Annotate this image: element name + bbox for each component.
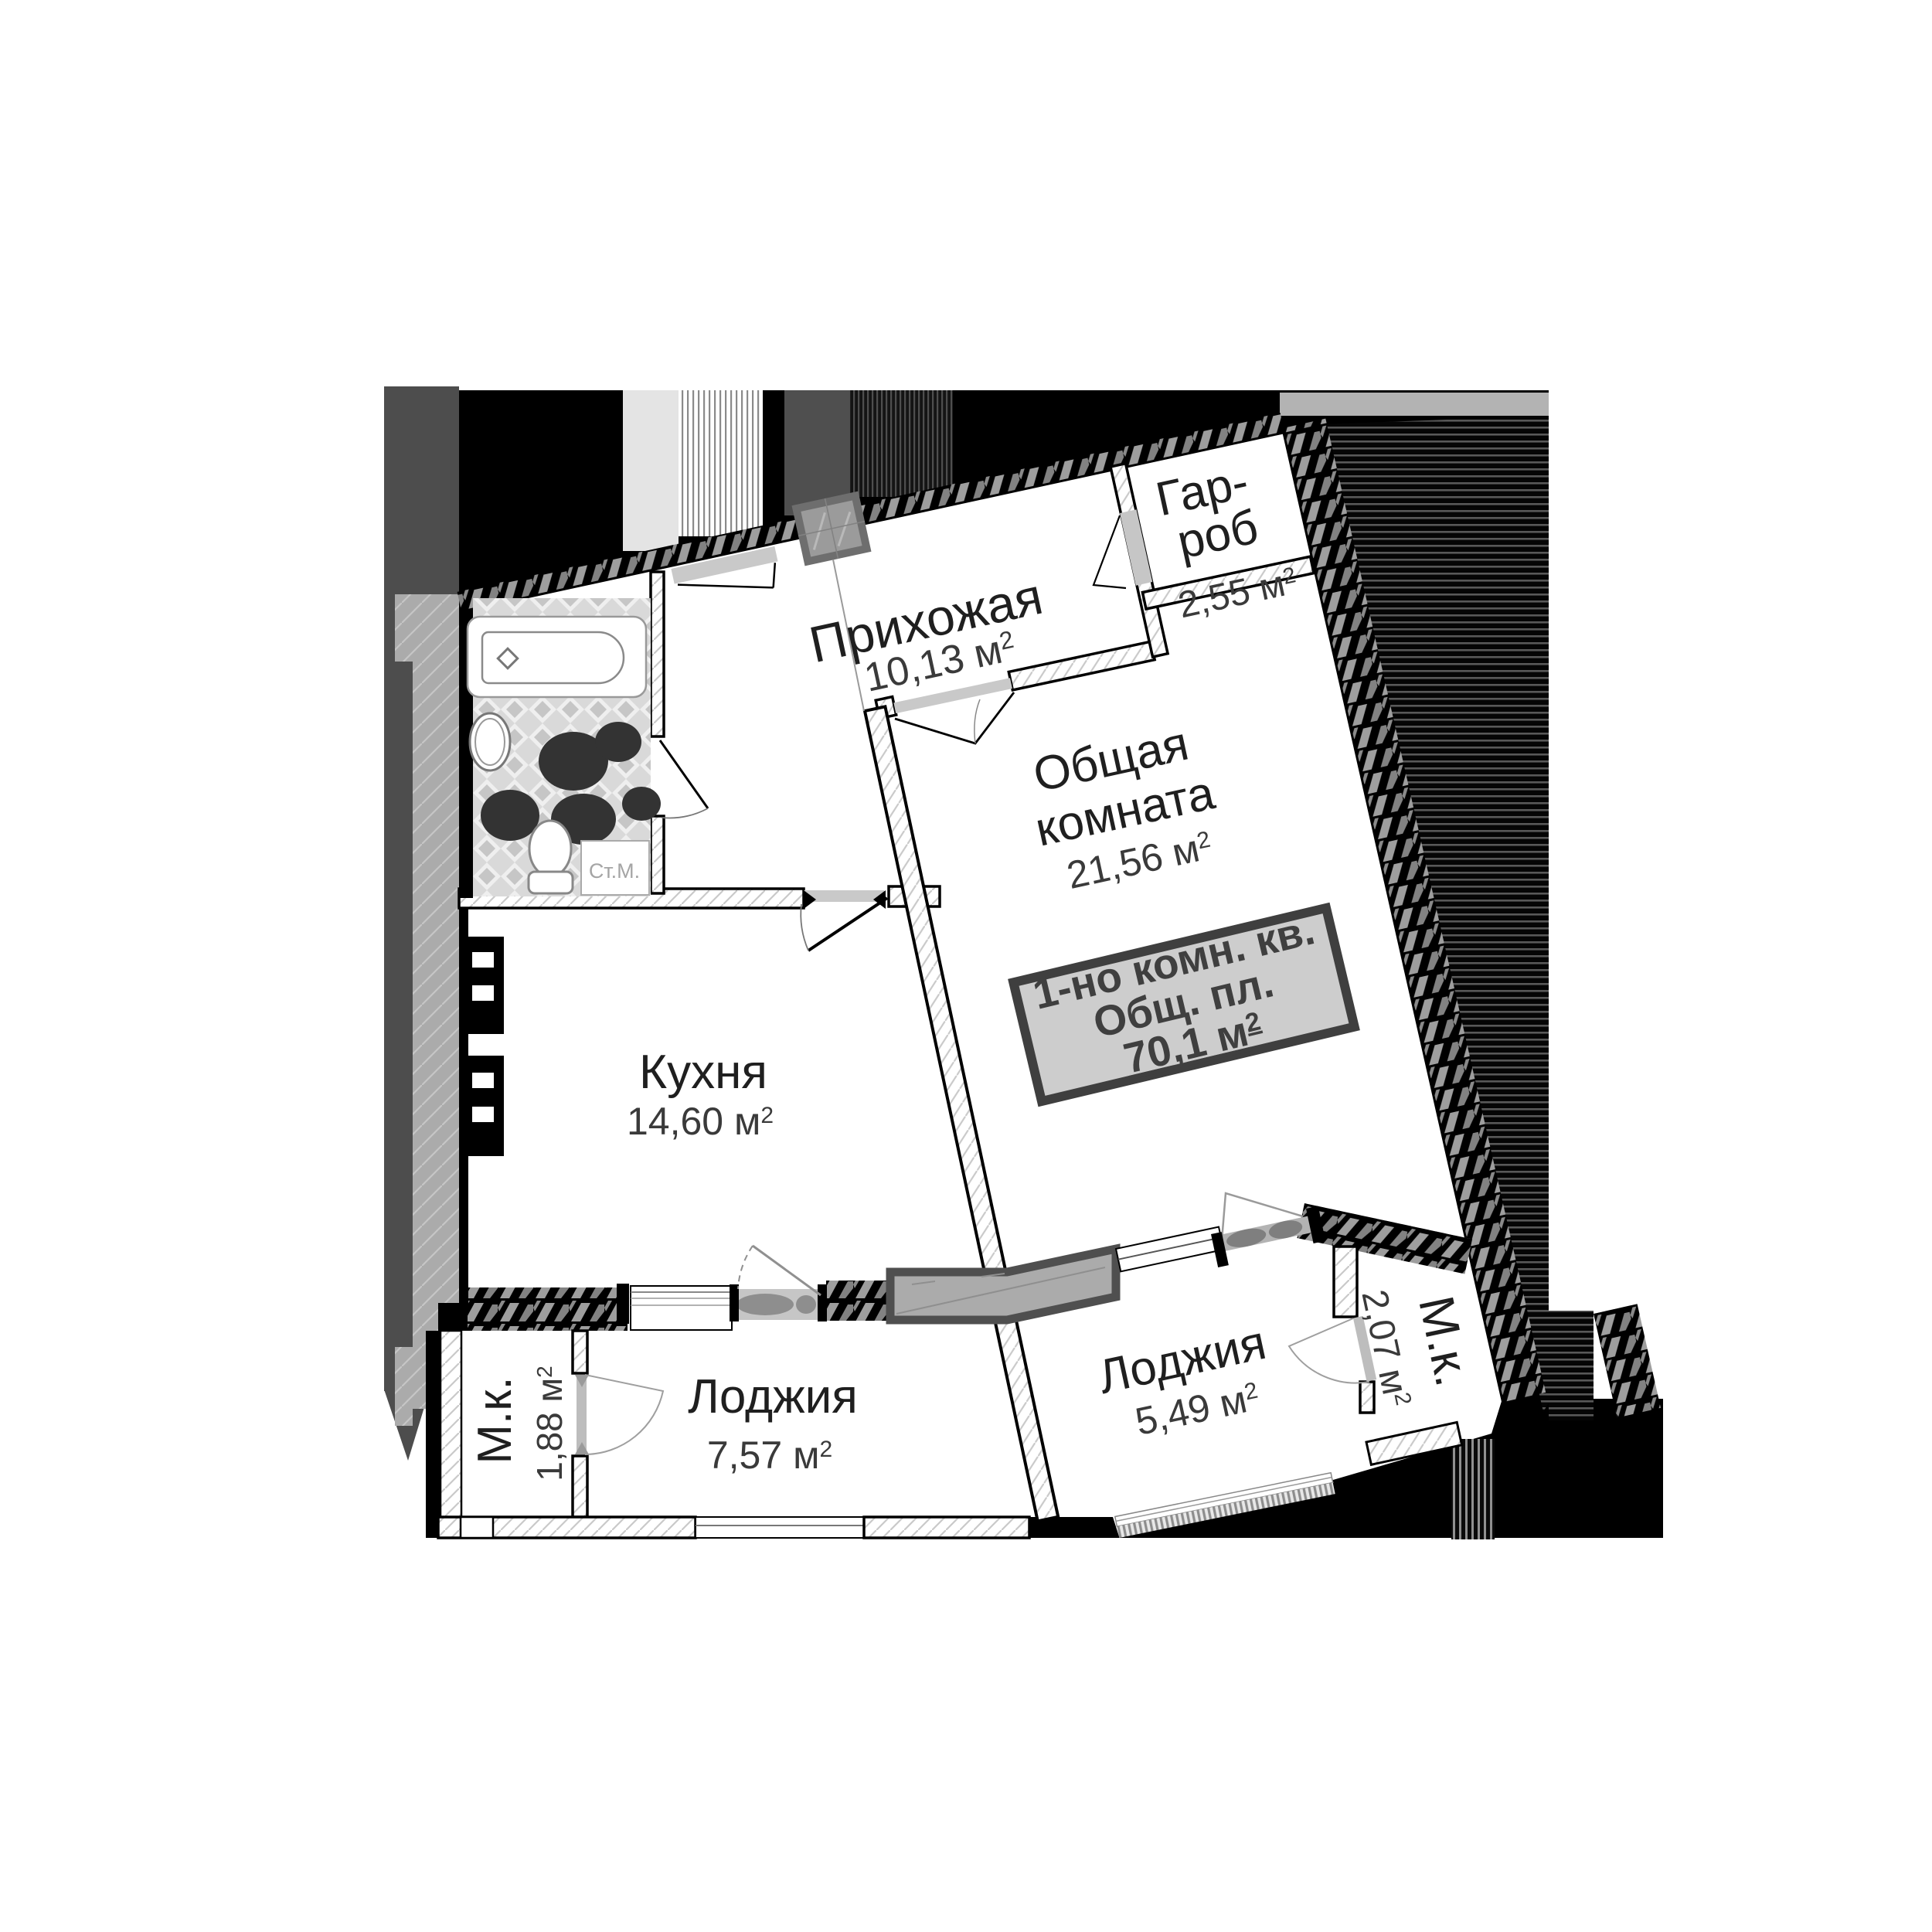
svg-text:7,57 м2: 7,57 м2 bbox=[707, 1434, 832, 1477]
svg-text:14,60 м2: 14,60 м2 bbox=[627, 1100, 774, 1143]
svg-text:1,88 м2: 1,88 м2 bbox=[529, 1366, 570, 1481]
svg-text:М.к.: М.к. bbox=[468, 1376, 522, 1464]
svg-text:Лоджия: Лоджия bbox=[688, 1370, 858, 1423]
svg-text:Ст.М.: Ст.М. bbox=[589, 859, 640, 883]
svg-text:Кухня: Кухня bbox=[639, 1046, 767, 1099]
